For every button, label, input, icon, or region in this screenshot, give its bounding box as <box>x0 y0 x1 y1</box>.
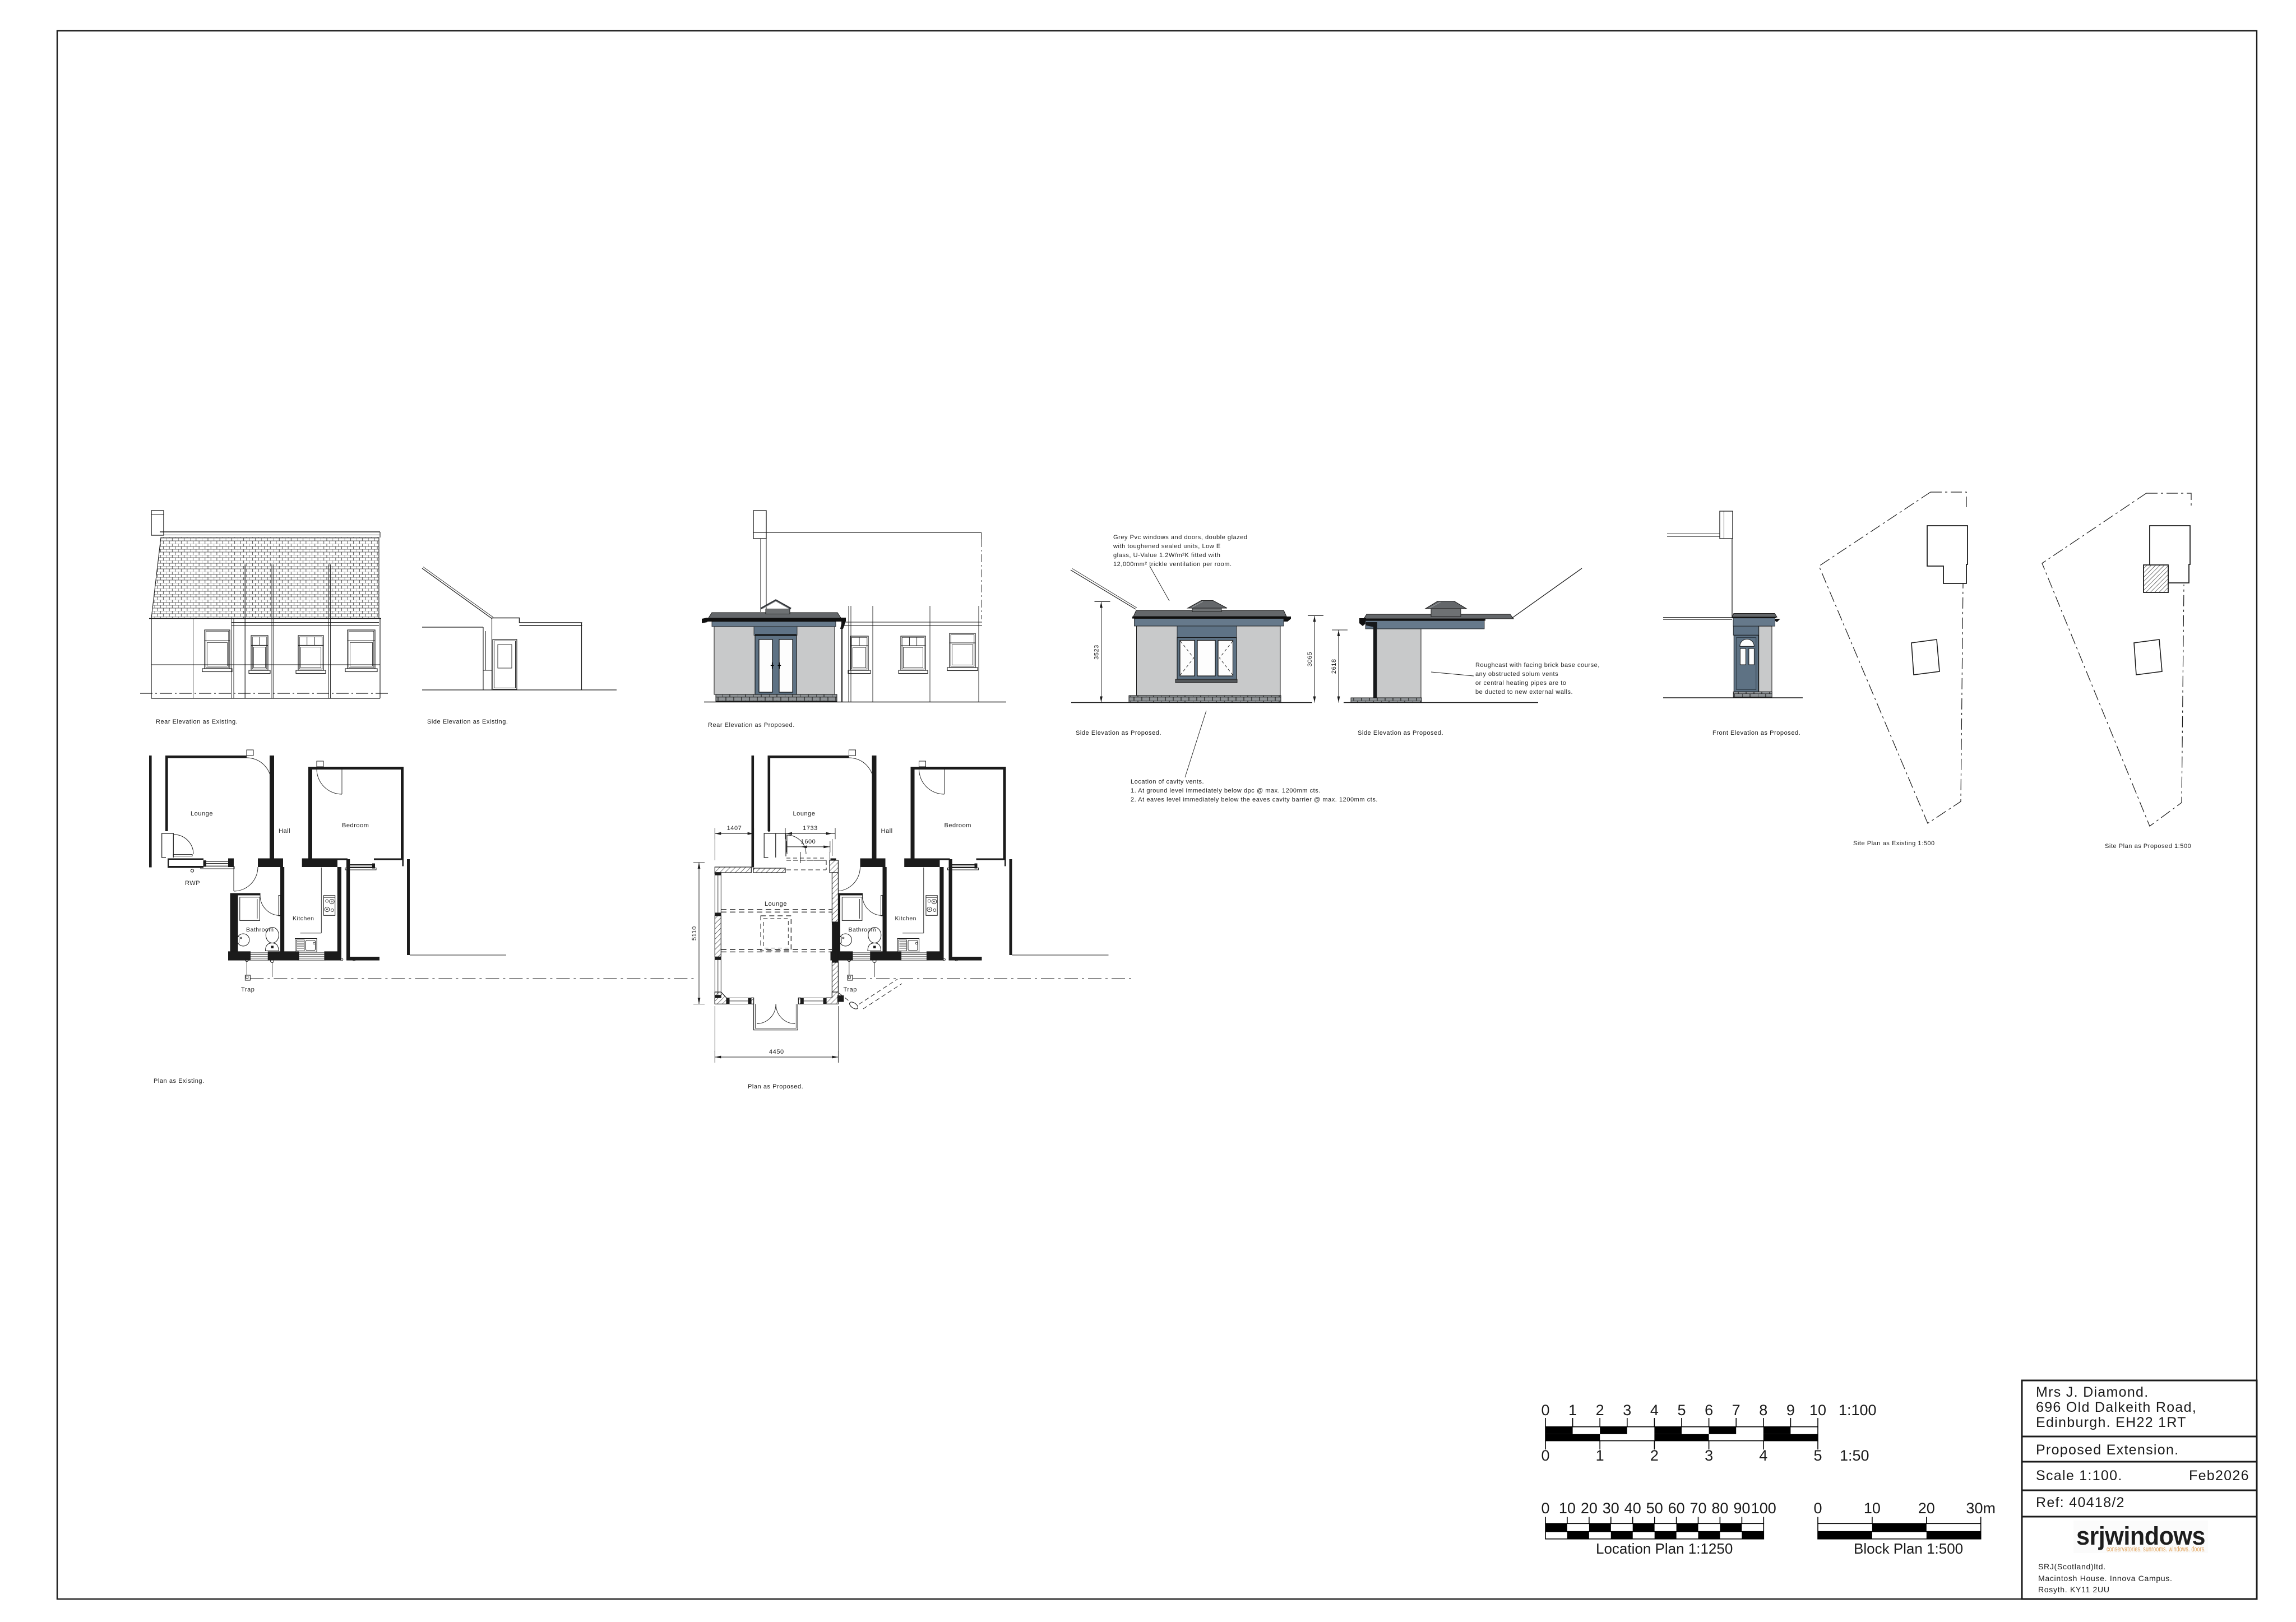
svg-text:3065: 3065 <box>1307 652 1313 667</box>
svg-text:Macintosh House. Innova Cam: Macintosh House. Innova Campus. <box>2038 1574 2173 1583</box>
svg-text:Lounge: Lounge <box>765 901 787 907</box>
svg-text:conservatories. sunrooms. wind: conservatories. sunrooms. windows. doors… <box>2107 1545 2206 1553</box>
svg-text:Site Plan as Proposed 1:50: Site Plan as Proposed 1:500 <box>2105 843 2191 850</box>
svg-text:100: 100 <box>1751 1500 1776 1517</box>
svg-text:Location of cavity vents.: Location of cavity vents. <box>1131 778 1204 785</box>
svg-text:or central heating pipes a: or central heating pipes are to <box>1475 680 1567 687</box>
svg-text:Roughcast with facing brick: Roughcast with facing brick base course, <box>1475 662 1600 669</box>
svg-text:Front Elevation as Proposed: Front Elevation as Proposed. <box>1712 730 1800 736</box>
svg-text:80: 80 <box>1711 1500 1728 1517</box>
svg-text:90: 90 <box>1733 1500 1750 1517</box>
svg-text:Side Elevation as Existing.: Side Elevation as Existing. <box>427 719 508 725</box>
svg-text:10: 10 <box>1864 1500 1881 1517</box>
svg-text:40: 40 <box>1624 1500 1641 1517</box>
svg-text:Proposed Extension.: Proposed Extension. <box>2036 1442 2179 1458</box>
svg-text:Ref: 40418/2: Ref: 40418/2 <box>2036 1495 2125 1510</box>
svg-text:0: 0 <box>1541 1402 1549 1419</box>
svg-text:12,000mm² trickle ventilatio: 12,000mm² trickle ventilation per room. <box>1113 561 1232 568</box>
svg-text:Hall: Hall <box>279 828 290 835</box>
svg-text:Site Plan as Existing 1:50: Site Plan as Existing 1:500 <box>1853 840 1935 847</box>
svg-text:Scale 1:100.: Scale 1:100. <box>2036 1468 2123 1484</box>
svg-text:5110: 5110 <box>691 926 698 940</box>
svg-text:Location Plan 1:1250: Location Plan 1:1250 <box>1596 1540 1733 1557</box>
svg-text:Block Plan 1:500: Block Plan 1:500 <box>1854 1540 1963 1557</box>
svg-text:1407: 1407 <box>727 825 742 832</box>
svg-text:Rear Elevation as Existing.: Rear Elevation as Existing. <box>156 719 238 725</box>
svg-text:be ducted to new external: be ducted to new external walls. <box>1475 689 1573 696</box>
svg-text:Side Elevation as Proposed.: Side Elevation as Proposed. <box>1076 730 1161 736</box>
svg-text:Side Elevation as Proposed.: Side Elevation as Proposed. <box>1358 730 1443 736</box>
svg-text:70: 70 <box>1689 1500 1706 1517</box>
svg-text:SRJ(Scotland)ltd.: SRJ(Scotland)ltd. <box>2038 1562 2106 1571</box>
svg-text:Plan as Existing.: Plan as Existing. <box>154 1078 205 1085</box>
svg-text:4: 4 <box>1759 1447 1767 1464</box>
svg-text:3: 3 <box>1705 1447 1713 1464</box>
svg-text:Plan as Proposed.: Plan as Proposed. <box>748 1083 803 1090</box>
svg-text:glass, U-Value 1.2W/m²K fit: glass, U-Value 1.2W/m²K fitted with <box>1113 552 1220 559</box>
svg-text:5: 5 <box>1813 1447 1822 1464</box>
svg-text:0: 0 <box>1813 1500 1822 1517</box>
svg-text:RWP: RWP <box>185 880 200 887</box>
svg-text:1. At ground level immedia: 1. At ground level immediately below dpc… <box>1131 787 1321 794</box>
svg-text:any obstructed solum vents: any obstructed solum vents <box>1475 671 1558 678</box>
svg-text:10: 10 <box>1809 1402 1826 1419</box>
svg-text:1: 1 <box>1568 1402 1577 1419</box>
svg-text:2. At eaves level immediat: 2. At eaves level immediately below the … <box>1131 796 1378 803</box>
svg-text:with toughened sealed units: with toughened sealed units, Low E <box>1113 543 1221 550</box>
svg-text:30: 30 <box>1603 1500 1619 1517</box>
svg-text:Grey Pvc windows and doors: Grey Pvc windows and doors, double glaze… <box>1113 534 1248 541</box>
svg-text:1600: 1600 <box>801 838 816 845</box>
svg-text:Bathroom: Bathroom <box>246 926 274 933</box>
svg-text:Mrs J. Diamond.: Mrs J. Diamond. <box>2036 1384 2149 1400</box>
svg-text:Edinburgh. EH22 1RT: Edinburgh. EH22 1RT <box>2036 1415 2187 1430</box>
svg-text:0: 0 <box>1541 1447 1549 1464</box>
svg-text:Lounge: Lounge <box>191 810 213 817</box>
svg-text:0: 0 <box>1541 1500 1549 1517</box>
svg-text:2: 2 <box>1650 1447 1659 1464</box>
svg-text:Bedroom: Bedroom <box>342 822 369 829</box>
svg-text:Trap: Trap <box>241 986 254 993</box>
svg-text:Rear Elevation as Proposed.: Rear Elevation as Proposed. <box>708 722 795 729</box>
svg-text:20: 20 <box>1918 1500 1935 1517</box>
svg-text:9: 9 <box>1786 1402 1795 1419</box>
svg-text:50: 50 <box>1646 1500 1663 1517</box>
svg-text:Feb2026: Feb2026 <box>2189 1468 2249 1484</box>
svg-text:3523: 3523 <box>1094 645 1100 660</box>
svg-text:8: 8 <box>1759 1402 1767 1419</box>
svg-text:20: 20 <box>1581 1500 1598 1517</box>
svg-text:3: 3 <box>1623 1402 1631 1419</box>
svg-text:4450: 4450 <box>769 1049 784 1055</box>
svg-text:10: 10 <box>1559 1500 1576 1517</box>
svg-text:5: 5 <box>1677 1402 1686 1419</box>
svg-text:6: 6 <box>1705 1402 1713 1419</box>
svg-text:7: 7 <box>1732 1402 1740 1419</box>
svg-text:1:100: 1:100 <box>1839 1402 1877 1419</box>
svg-text:1:50: 1:50 <box>1840 1447 1869 1464</box>
svg-text:60: 60 <box>1668 1500 1685 1517</box>
svg-text:2: 2 <box>1596 1402 1604 1419</box>
svg-text:696 Old Dalkeith Road,: 696 Old Dalkeith Road, <box>2036 1399 2197 1415</box>
svg-text:Rosyth. KY11 2UU: Rosyth. KY11 2UU <box>2038 1585 2110 1594</box>
svg-text:2618: 2618 <box>1331 659 1337 674</box>
svg-text:1: 1 <box>1596 1447 1604 1464</box>
svg-text:30m: 30m <box>1966 1500 1996 1517</box>
svg-text:1733: 1733 <box>803 825 818 832</box>
svg-text:4: 4 <box>1650 1402 1659 1419</box>
svg-text:Kitchen: Kitchen <box>293 915 314 922</box>
